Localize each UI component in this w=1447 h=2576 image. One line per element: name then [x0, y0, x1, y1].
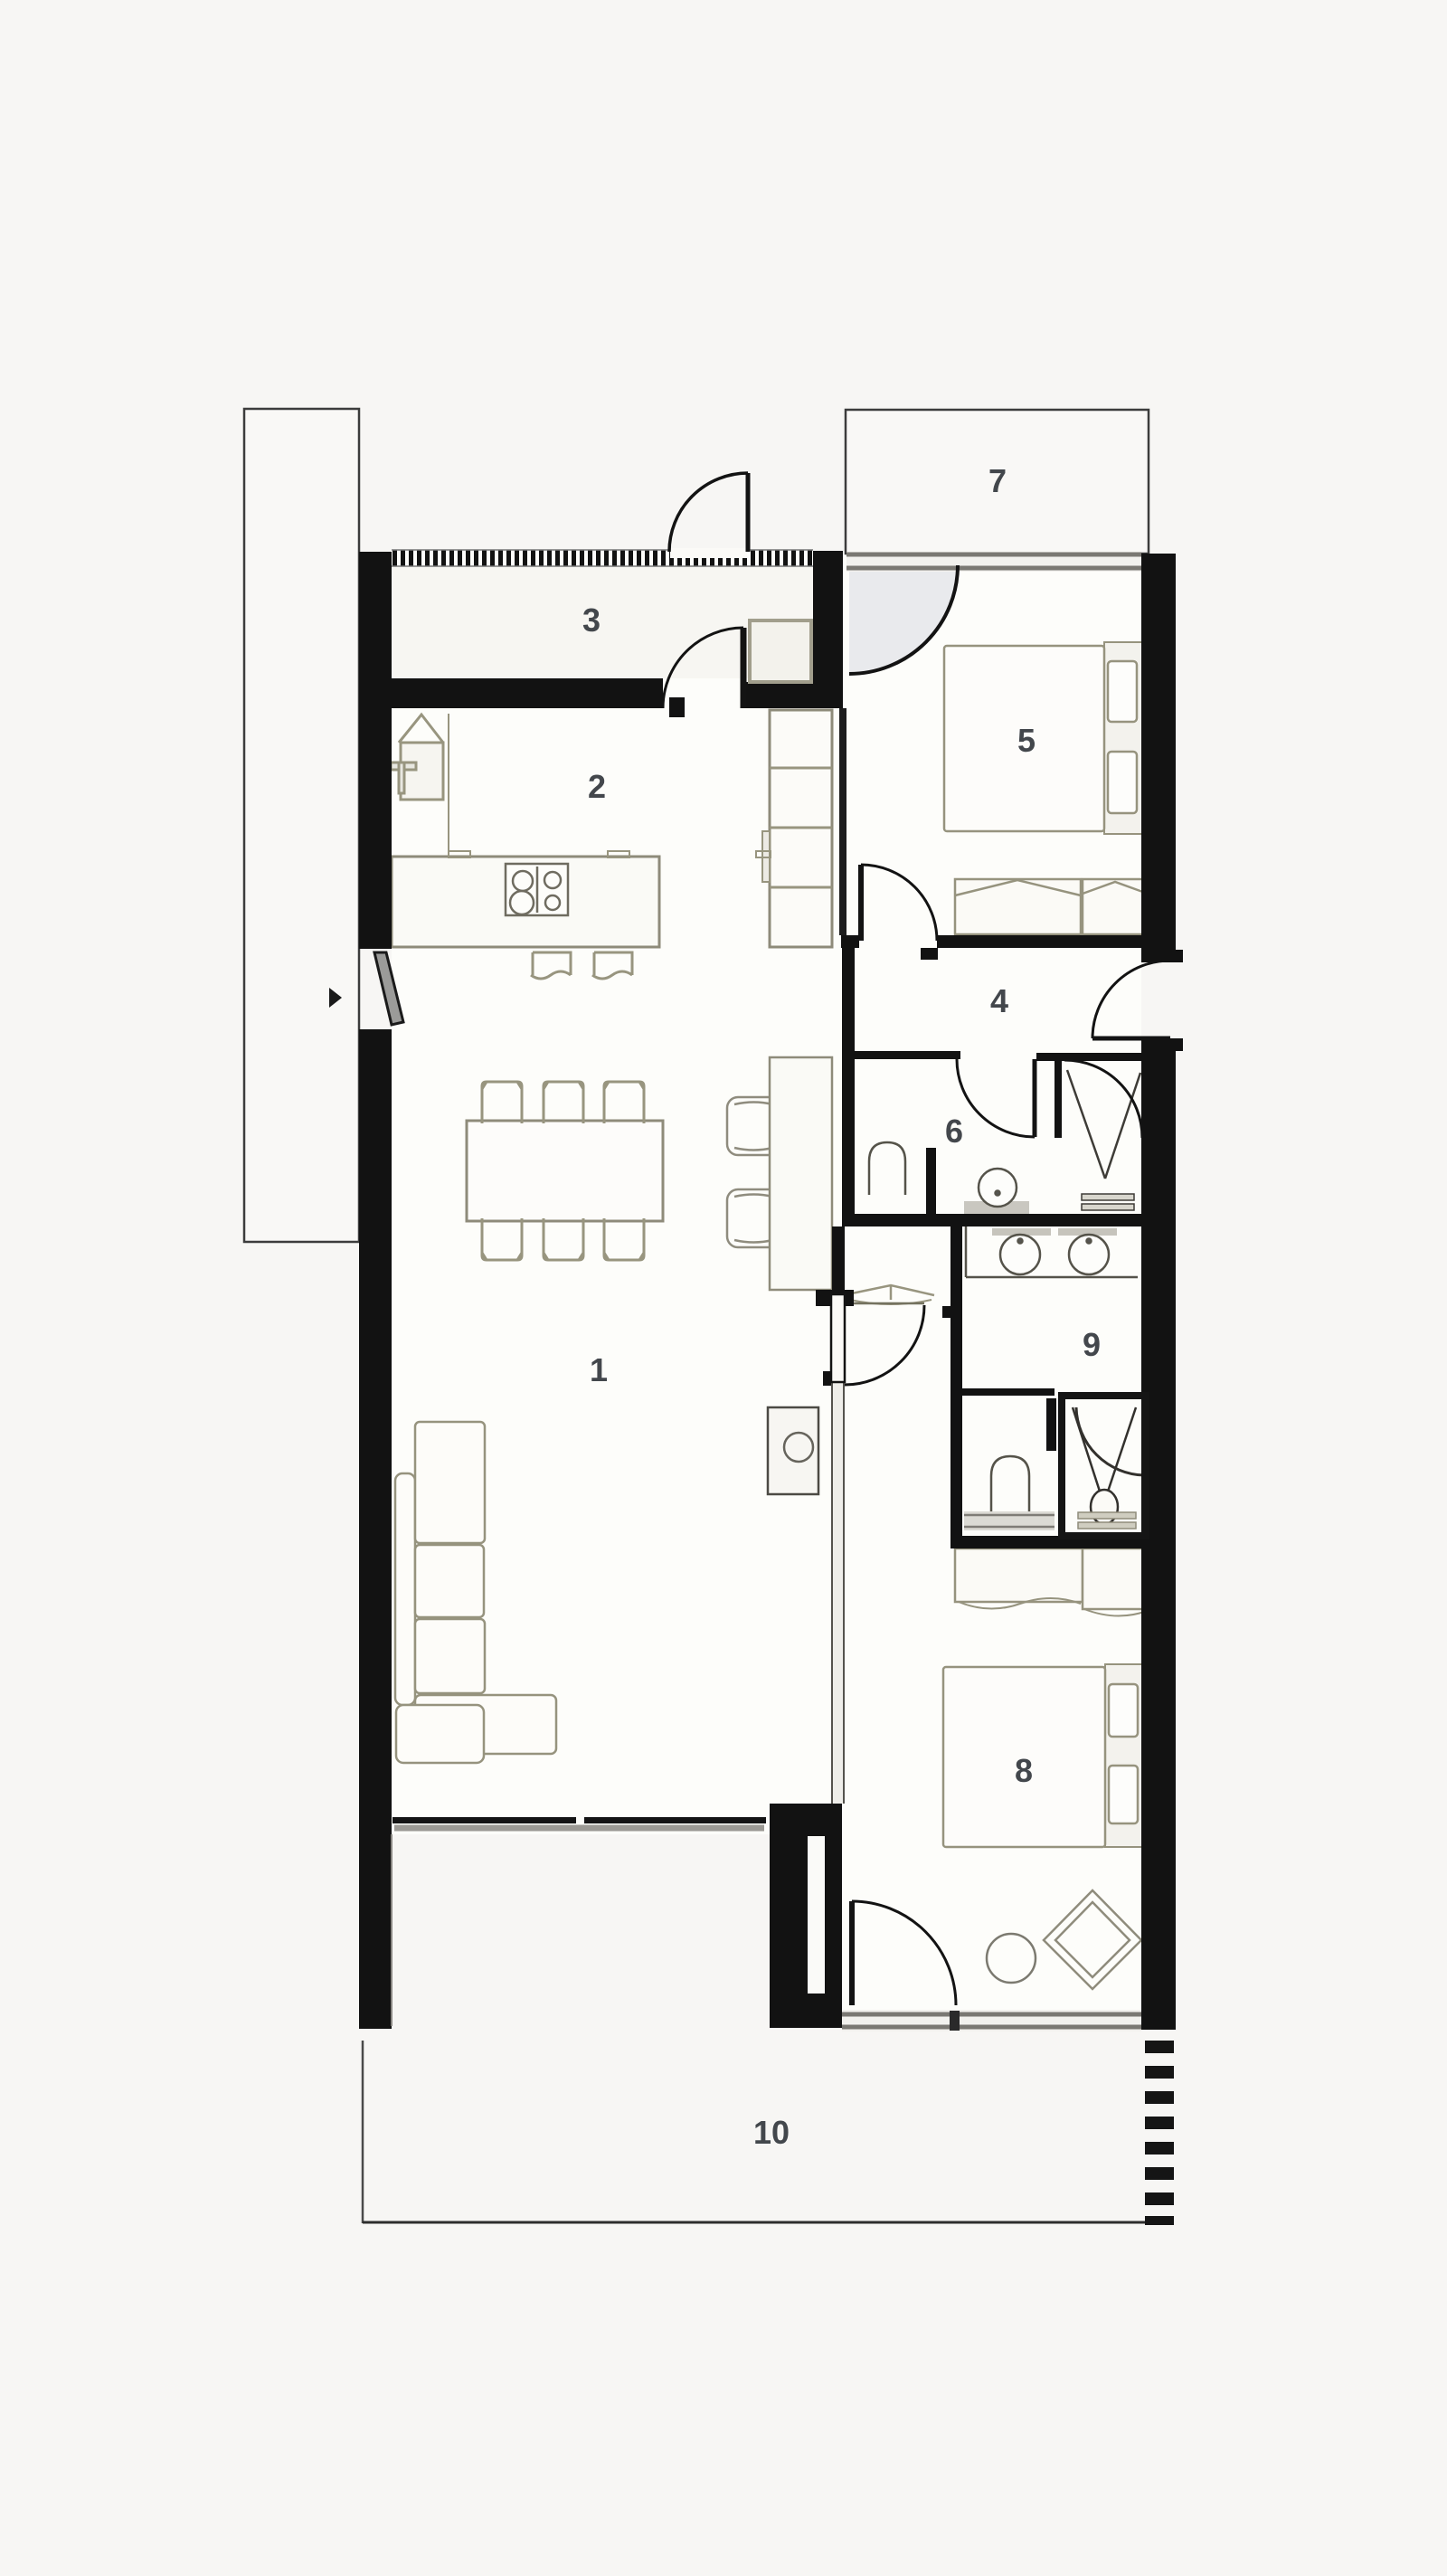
svg-text:9: 9 — [1083, 1326, 1101, 1363]
svg-text:7: 7 — [988, 462, 1007, 499]
svg-text:10: 10 — [753, 2114, 790, 2151]
svg-text:6: 6 — [945, 1113, 963, 1150]
svg-text:8: 8 — [1015, 1752, 1033, 1789]
svg-text:5: 5 — [1017, 722, 1036, 759]
svg-text:4: 4 — [990, 982, 1008, 1019]
svg-text:2: 2 — [588, 768, 606, 805]
svg-text:1: 1 — [590, 1351, 608, 1388]
svg-text:3: 3 — [582, 601, 601, 639]
